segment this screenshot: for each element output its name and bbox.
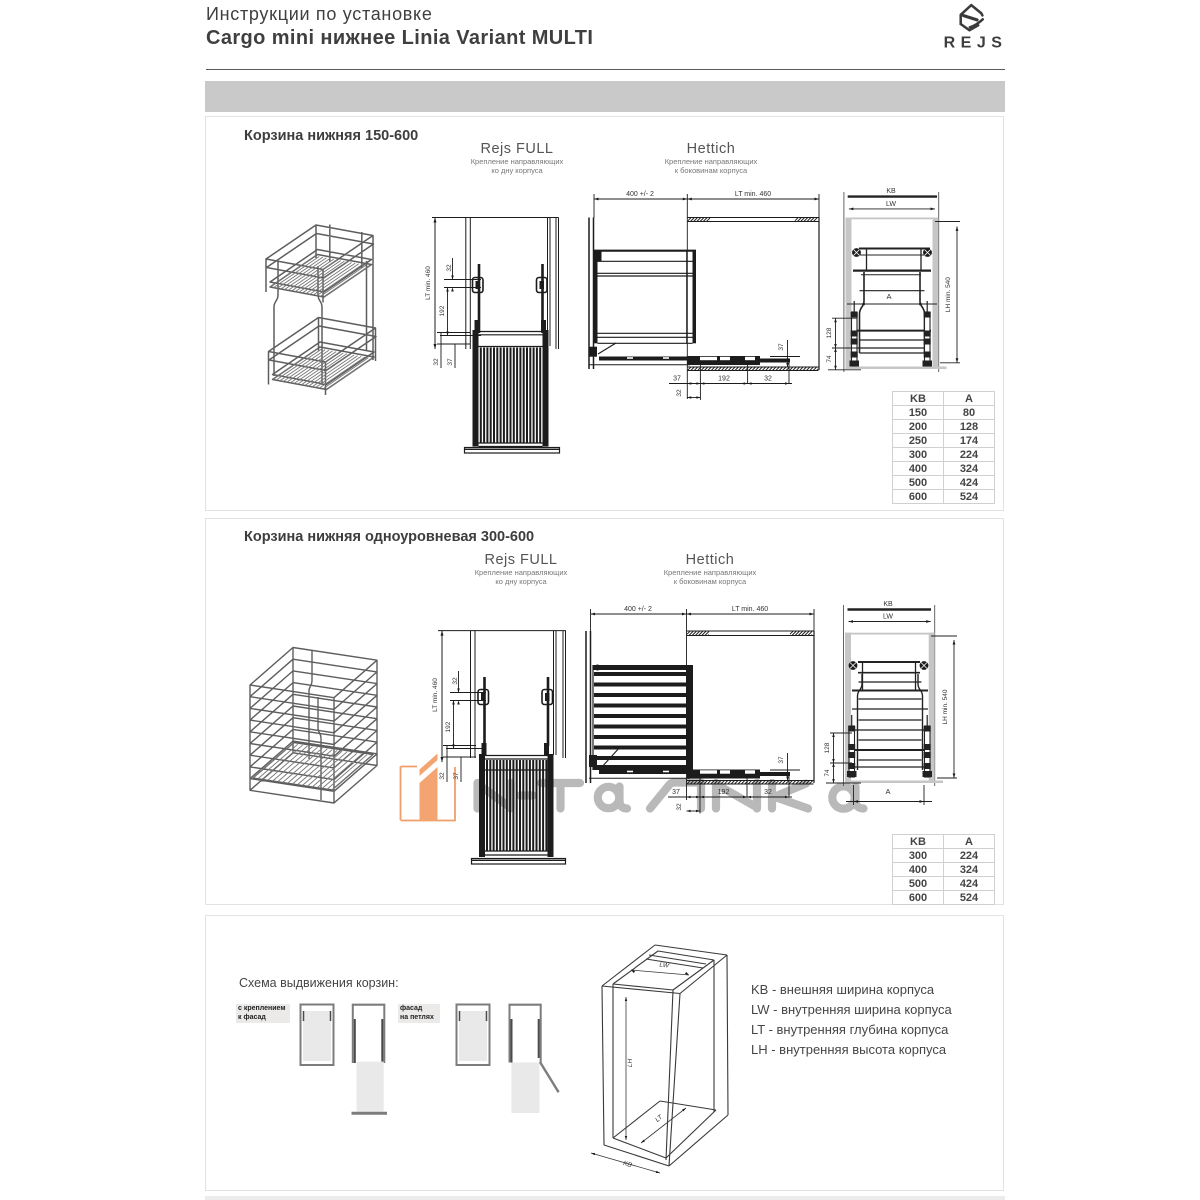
svg-text:KB: KB <box>622 1160 633 1169</box>
svg-text:32: 32 <box>446 264 453 272</box>
svg-text:32: 32 <box>439 772 446 780</box>
svg-text:LW: LW <box>659 961 670 969</box>
svg-text:A: A <box>885 787 890 796</box>
svg-text:74: 74 <box>824 769 831 777</box>
svg-text:LH: LH <box>627 1059 634 1068</box>
svg-text:KB: KB <box>883 601 893 608</box>
svg-text:400 +/- 2: 400 +/- 2 <box>624 606 652 613</box>
svg-text:128: 128 <box>826 327 833 338</box>
svg-text:KB: KB <box>886 188 896 195</box>
svg-text:192: 192 <box>439 305 446 316</box>
svg-text:128: 128 <box>824 742 831 753</box>
svg-text:32: 32 <box>764 789 772 796</box>
svg-text:192: 192 <box>445 721 452 732</box>
svg-text:REJS: REJS <box>944 35 1008 52</box>
svg-text:32: 32 <box>676 803 683 811</box>
svg-text:37: 37 <box>453 772 460 780</box>
svg-text:192: 192 <box>718 376 730 383</box>
svg-text:37: 37 <box>673 376 681 383</box>
svg-text:37: 37 <box>778 756 785 764</box>
svg-text:400 +/- 2: 400 +/- 2 <box>626 191 654 198</box>
svg-text:LW: LW <box>883 614 893 621</box>
svg-text:37: 37 <box>672 789 680 796</box>
svg-text:LW: LW <box>886 201 896 208</box>
svg-text:32: 32 <box>452 677 459 685</box>
svg-text:37: 37 <box>447 358 454 366</box>
svg-text:32: 32 <box>764 376 772 383</box>
svg-text:32: 32 <box>676 389 683 397</box>
svg-text:LT: LT <box>654 1113 665 1124</box>
svg-text:LT min. 460: LT min. 460 <box>735 191 771 198</box>
svg-text:32: 32 <box>433 358 440 366</box>
svg-text:LH min. 540: LH min. 540 <box>942 689 949 724</box>
svg-text:192: 192 <box>718 789 730 796</box>
svg-text:74: 74 <box>826 355 833 363</box>
svg-text:LH min. 540: LH min. 540 <box>945 277 952 312</box>
svg-text:A: A <box>886 292 891 301</box>
svg-text:LT min. 460: LT min. 460 <box>432 678 439 712</box>
svg-text:LT min. 460: LT min. 460 <box>732 606 768 613</box>
svg-text:LT min. 460: LT min. 460 <box>425 266 432 300</box>
svg-text:37: 37 <box>778 343 785 351</box>
